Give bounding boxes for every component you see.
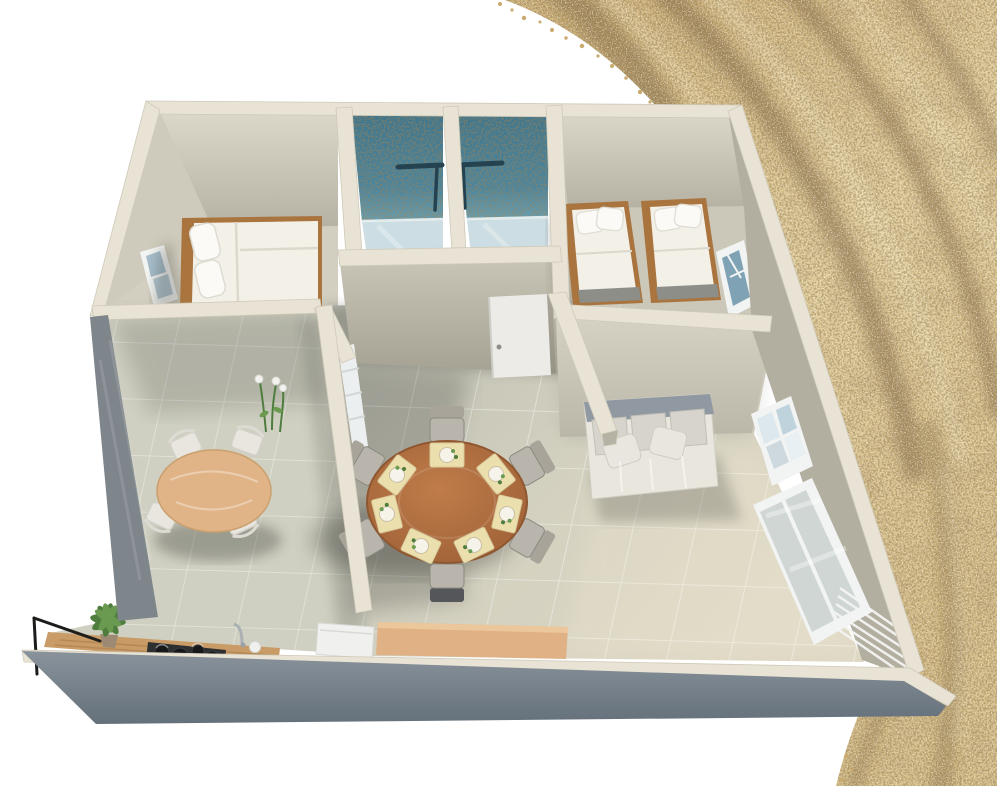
tan-island-front <box>376 622 568 659</box>
door-handle <box>497 345 502 350</box>
floorplan-scene <box>0 0 997 786</box>
bath-south-cap <box>338 246 562 266</box>
floorplan-rendering <box>0 0 997 786</box>
bedroom-2-north-wall <box>558 109 756 208</box>
shower-room-door <box>489 294 556 378</box>
white-appliance <box>316 623 374 659</box>
nook-table <box>157 450 271 532</box>
